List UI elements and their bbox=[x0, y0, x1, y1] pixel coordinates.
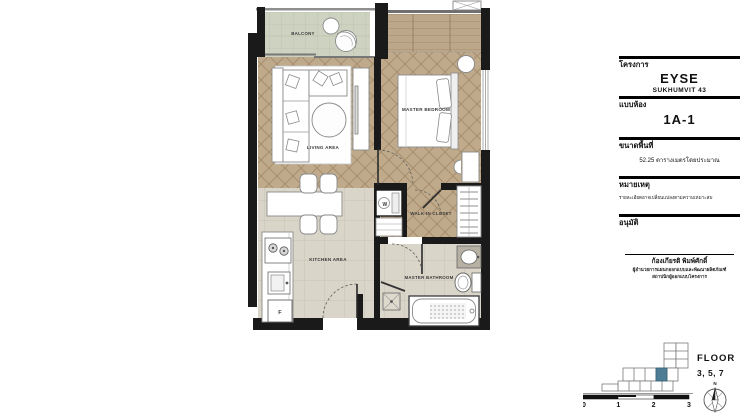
divider bbox=[619, 137, 740, 140]
floor-plan-sheet: BALCONY LIVING AREA MASTER BEDROOM WALK-… bbox=[0, 0, 745, 415]
project-name: EYSE bbox=[619, 72, 740, 86]
bathtub bbox=[409, 296, 479, 326]
floor-info: FLOOR 3, 5, 7 bbox=[697, 353, 735, 378]
stove bbox=[265, 238, 291, 263]
kitchen-area-label: KITCHEN AREA bbox=[309, 257, 347, 262]
floor-plan-drawing: BALCONY LIVING AREA MASTER BEDROOM WALK-… bbox=[245, 0, 495, 340]
highlighted-unit bbox=[656, 368, 667, 381]
compass-north-label: N bbox=[713, 381, 716, 386]
sink bbox=[268, 272, 290, 294]
remark-label: หมายเหตุ bbox=[619, 181, 740, 189]
signature-line bbox=[625, 254, 734, 255]
master-bathroom-label: MASTER BATHROOM bbox=[404, 275, 453, 280]
scale-tick-0: 0 bbox=[583, 402, 586, 409]
key-plan bbox=[598, 340, 694, 392]
ac-unit-icon bbox=[453, 1, 481, 10]
compass-icon: N bbox=[699, 379, 731, 415]
tv-console bbox=[353, 68, 369, 150]
scale-bar: 0 1 2 3 bbox=[583, 392, 693, 410]
dining-table bbox=[267, 192, 342, 216]
scale-tick-3: 3 bbox=[687, 402, 691, 409]
title-block: โครงการ EYSE SUKHUMVIT 43 แบบห้อง 1A-1 ข… bbox=[619, 56, 740, 291]
bathroom-vanity bbox=[457, 246, 481, 268]
floor-label: FLOOR bbox=[697, 353, 735, 364]
remark-text: รายละเอียดอาจเปลี่ยนแปลงตามความเหมาะสม bbox=[619, 195, 740, 200]
divider bbox=[619, 56, 740, 59]
master-bedroom-label: MASTER BEDROOM bbox=[402, 107, 450, 112]
unit-type: 1A-1 bbox=[619, 113, 740, 127]
approval-label: อนุมัติ bbox=[619, 219, 740, 227]
approver-name: ก้องเกียรติ พิมพ์ศักดิ์ bbox=[619, 258, 740, 265]
project-label: โครงการ bbox=[619, 61, 740, 69]
area-label: ขนาดพื้นที่ bbox=[619, 142, 740, 150]
walk-in-closet-label: WALK-IN CLOSET bbox=[410, 211, 451, 216]
washer bbox=[376, 190, 402, 216]
wardrobe bbox=[457, 186, 481, 237]
scale-tick-2: 2 bbox=[652, 402, 656, 409]
floor-numbers: 3, 5, 7 bbox=[697, 368, 735, 378]
divider bbox=[619, 96, 740, 99]
balcony-table bbox=[323, 18, 339, 34]
fridge-label: F bbox=[278, 310, 282, 316]
ottoman bbox=[312, 103, 346, 137]
approver-title-1: ผู้อำนวยการแผนกออกแบบและพัฒนาผลิตภัณฑ์ bbox=[619, 267, 740, 272]
approver-title-2: สถาปนิกผู้ออกแบบโครงการ bbox=[619, 274, 740, 279]
scale-tick-1: 1 bbox=[616, 402, 620, 409]
washer-label: W bbox=[383, 202, 388, 208]
toilet bbox=[455, 273, 481, 292]
divider bbox=[619, 176, 740, 179]
area-value: 52.25 ตารางเมตรโดยประมาณ bbox=[619, 158, 740, 165]
closet-shelf bbox=[376, 218, 402, 236]
living-area-label: LIVING AREA bbox=[307, 145, 340, 150]
unit-type-label: แบบห้อง bbox=[619, 101, 740, 109]
project-subtitle: SUKHUMVIT 43 bbox=[619, 87, 740, 94]
divider bbox=[619, 214, 740, 217]
bedside-table bbox=[458, 56, 475, 73]
balcony-chair bbox=[336, 31, 357, 52]
balcony-label: BALCONY bbox=[291, 31, 314, 36]
